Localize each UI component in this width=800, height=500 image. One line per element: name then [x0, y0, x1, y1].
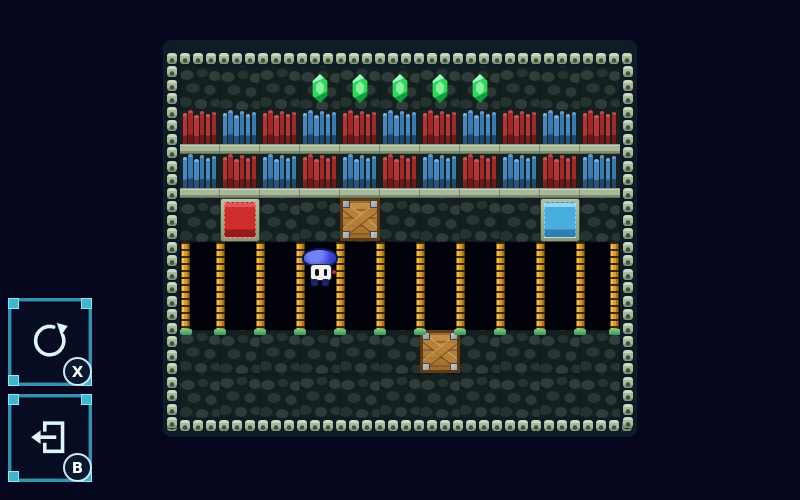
book-spine: [268, 154, 273, 188]
book-spine: [194, 115, 199, 144]
wall-tile: [479, 53, 489, 64]
book-spine: [183, 157, 188, 188]
book-spine: [508, 110, 513, 144]
book-spine: [560, 111, 565, 144]
stone-tile: [540, 374, 580, 418]
ladder-foot: [609, 329, 621, 335]
book-spine: [388, 154, 393, 188]
book-spine: [514, 159, 519, 188]
book-spine: [446, 158, 451, 188]
bookshelf-tile: [380, 154, 420, 198]
book-spine: [308, 154, 313, 188]
book-spine: [354, 115, 359, 144]
wall-tile: [623, 120, 633, 131]
book-spine: [206, 114, 211, 144]
wall-tile: [623, 134, 633, 145]
book-spine: [526, 158, 531, 188]
ladder: [456, 242, 465, 330]
wall-tile: [219, 53, 229, 64]
book-spine: [240, 155, 245, 188]
wall-tile: [557, 53, 567, 64]
wall-tile: [167, 228, 177, 239]
book-spine: [326, 158, 331, 188]
crate-corner-bracket: [341, 232, 349, 240]
wall-tile: [623, 404, 633, 415]
shelf-board: [219, 188, 261, 198]
wall-tile: [623, 377, 633, 388]
ladder-passage-tile: [500, 242, 540, 286]
wall-tile: [531, 53, 541, 64]
stone-tile: [300, 330, 340, 374]
gem-highlight: [436, 81, 444, 95]
stone-tile: [300, 374, 340, 418]
shelf-board: [180, 144, 221, 154]
wall-tile: [623, 282, 633, 293]
wall-tile: [440, 53, 450, 64]
stone-tile: [460, 374, 500, 418]
book-spine: [572, 156, 577, 188]
wall-tile: [622, 53, 632, 64]
wall-tile: [167, 323, 177, 334]
wall-tile: [167, 336, 177, 347]
wall-tile: [167, 93, 177, 104]
book-spine: [303, 113, 308, 144]
wall-tile: [623, 188, 633, 199]
wall-tile: [596, 420, 606, 431]
book-spine: [468, 110, 473, 144]
wall-tile: [167, 147, 177, 158]
shelf-board: [419, 144, 461, 154]
book-spine: [360, 155, 365, 188]
book-spine: [583, 113, 588, 144]
book-spine: [423, 157, 428, 188]
book-spine: [606, 114, 611, 144]
book-spine: [526, 114, 531, 144]
book-spine: [366, 114, 371, 144]
wall-tile: [310, 53, 320, 64]
book-spine: [486, 158, 491, 188]
wall-tile: [271, 53, 281, 64]
wall-tile: [245, 420, 255, 431]
book-spine: [320, 155, 325, 188]
book-spine: [394, 159, 399, 188]
bookshelf-tile: [260, 110, 300, 154]
stone-tile: [380, 198, 420, 242]
game-board: [163, 40, 637, 437]
player-hand: [332, 270, 336, 274]
key-badge-b: B: [63, 453, 92, 482]
wall-tile: [623, 215, 633, 226]
book-spine: [206, 158, 211, 188]
book-spine: [308, 110, 313, 144]
shelf-board: [459, 188, 501, 198]
book-spine: [223, 157, 228, 188]
crate: [420, 330, 460, 373]
book-spine: [314, 115, 319, 144]
blue-block: [541, 199, 579, 241]
shelf-board: [579, 188, 620, 198]
wall-tile: [167, 66, 177, 77]
button-corner: [8, 394, 19, 405]
wall-tile: [375, 420, 385, 431]
block-face: [224, 202, 256, 238]
book-spine: [412, 156, 417, 188]
ladder-passage-tile: [260, 286, 300, 330]
wall-tile: [388, 420, 398, 431]
book-spine: [480, 111, 485, 144]
wall-tile: [167, 174, 177, 185]
book-spine: [428, 154, 433, 188]
stone-tile: [420, 374, 460, 418]
book-spine: [274, 115, 279, 144]
bookshelf-tile: [180, 154, 220, 198]
ladder-foot: [574, 329, 586, 335]
gem-highlight: [396, 81, 404, 95]
shelf-board: [379, 188, 421, 198]
ladder-passage-tile: [260, 242, 300, 286]
bookshelf-tile: [260, 154, 300, 198]
bookshelf-tile: [340, 110, 380, 154]
player-foot: [322, 279, 329, 286]
book-spine: [360, 111, 365, 144]
wall-tile: [323, 420, 333, 431]
book-spine: [520, 111, 525, 144]
wall-tile: [167, 417, 177, 428]
book-spine: [372, 156, 377, 188]
book-spine: [292, 112, 297, 144]
key-label: X: [72, 363, 84, 381]
book-spine: [332, 156, 337, 188]
book-spine: [252, 112, 257, 144]
stone-tile: [260, 198, 300, 242]
stone-tile: [580, 374, 620, 418]
bookshelf-tile: [300, 110, 340, 154]
wall-tile: [310, 420, 320, 431]
wall-tile: [167, 80, 177, 91]
ladder-passage-tile: [540, 286, 580, 330]
wall-tile: [623, 161, 633, 172]
wall-tile: [206, 53, 216, 64]
stone-tile: [540, 330, 580, 374]
wall-tile: [570, 420, 580, 431]
stone-tile: [260, 374, 300, 418]
stone-tile: [340, 374, 380, 418]
ladder-passage-tile: [300, 286, 340, 330]
wall-tile: [427, 53, 437, 64]
shelf-board: [180, 188, 221, 198]
ladder-passage-tile: [500, 286, 540, 330]
book-spine: [543, 157, 548, 188]
wall-tile: [623, 350, 633, 361]
wall-tile: [623, 93, 633, 104]
book-spine: [280, 155, 285, 188]
book-spine: [606, 158, 611, 188]
key-badge-x: X: [63, 357, 92, 386]
book-spine: [252, 156, 257, 188]
book-spine: [188, 154, 193, 188]
book-spine: [463, 157, 468, 188]
wall-tile: [623, 296, 633, 307]
book-spine: [246, 114, 251, 144]
ladder: [576, 242, 585, 330]
shelf-board: [299, 144, 341, 154]
wall-tile: [623, 147, 633, 158]
wall-tile: [623, 390, 633, 401]
wall-tile: [349, 53, 359, 64]
book-spine: [532, 112, 537, 144]
wall-tile: [167, 161, 177, 172]
crate-corner-bracket: [421, 364, 429, 372]
wall-tile: [505, 420, 515, 431]
book-spine: [428, 110, 433, 144]
book-spine: [440, 111, 445, 144]
ladder-passage-tile: [460, 286, 500, 330]
book-spine: [612, 112, 617, 144]
wall-tile: [271, 420, 281, 431]
wall-tile: [505, 53, 515, 64]
book-spine: [200, 155, 205, 188]
ladder: [536, 242, 545, 330]
restart-button[interactable]: X: [8, 298, 92, 386]
ladder-passage-tile: [220, 286, 260, 330]
wall-tile: [623, 417, 633, 428]
ladder-foot: [454, 329, 466, 335]
wall-tile: [232, 420, 242, 431]
player-eye: [315, 269, 319, 276]
shelf-board: [339, 144, 381, 154]
book-spine: [212, 156, 217, 188]
ladder-passage-tile: [220, 242, 260, 286]
exit-button[interactable]: B: [8, 394, 92, 482]
book-spine: [514, 115, 519, 144]
wall-tile: [414, 53, 424, 64]
stone-tile: [540, 66, 580, 110]
gem-highlight: [356, 81, 364, 95]
stone-tile: [260, 330, 300, 374]
shelf-board: [219, 144, 261, 154]
shelf-board: [259, 144, 301, 154]
wall-tile: [623, 309, 633, 320]
book-spine: [194, 159, 199, 188]
book-spine: [486, 114, 491, 144]
wall-tile: [623, 255, 633, 266]
wall-tile: [623, 363, 633, 374]
bookshelf-tile: [580, 110, 620, 154]
wall-tile: [323, 53, 333, 64]
bookshelf-tile: [500, 110, 540, 154]
gem-highlight: [316, 81, 324, 95]
wall-tile: [245, 53, 255, 64]
book-spine: [263, 157, 268, 188]
ladder-passage-tile: [380, 242, 420, 286]
book-spine: [268, 110, 273, 144]
wall-tile: [440, 420, 450, 431]
bookshelf-tile: [580, 154, 620, 198]
wall-tile: [167, 269, 177, 280]
book-spine: [612, 156, 617, 188]
book-spine: [554, 159, 559, 188]
shelf-board: [539, 144, 581, 154]
book-spine: [588, 154, 593, 188]
book-spine: [343, 157, 348, 188]
button-corner: [81, 298, 92, 309]
bookshelf-tile: [300, 154, 340, 198]
player-character: [302, 248, 338, 286]
book-spine: [434, 115, 439, 144]
wall-tile: [219, 420, 229, 431]
wall-tile: [167, 134, 177, 145]
shelf-board: [539, 188, 581, 198]
book-spine: [492, 156, 497, 188]
book-spine: [474, 159, 479, 188]
button-corner: [8, 375, 19, 386]
gem-highlight: [476, 81, 484, 95]
wall-tile: [258, 420, 268, 431]
wall-tile: [518, 53, 528, 64]
wall-tile: [401, 53, 411, 64]
wall-tile: [180, 53, 190, 64]
wall-tile: [375, 53, 385, 64]
red-block: [221, 199, 259, 241]
book-spine: [314, 159, 319, 188]
book-spine: [503, 157, 508, 188]
stone-tile: [300, 198, 340, 242]
bookshelf-tile: [220, 110, 260, 154]
ladder: [376, 242, 385, 330]
stone-tile: [180, 374, 220, 418]
book-spine: [543, 113, 548, 144]
book-spine: [286, 114, 291, 144]
wall-tile: [531, 420, 541, 431]
shelf-board: [339, 188, 381, 198]
book-spine: [588, 110, 593, 144]
book-spine: [326, 114, 331, 144]
wall-tile: [167, 309, 177, 320]
ladder-foot: [334, 329, 346, 335]
stone-tile: [580, 198, 620, 242]
ladder: [610, 242, 619, 330]
wall-tile: [167, 377, 177, 388]
book-spine: [228, 110, 233, 144]
wall-tile: [167, 350, 177, 361]
book-spine: [554, 115, 559, 144]
bookshelf-tile: [420, 154, 460, 198]
book-spine: [492, 112, 497, 144]
wall-tile: [284, 420, 294, 431]
book-spine: [372, 112, 377, 144]
ladder-foot: [414, 329, 426, 335]
book-spine: [246, 158, 251, 188]
wall-tile: [297, 53, 307, 64]
game-screen: X B: [0, 0, 800, 500]
stone-tile: [500, 374, 540, 418]
wall-tile: [167, 188, 177, 199]
stone-tile: [380, 374, 420, 418]
book-spine: [566, 158, 571, 188]
book-spine: [200, 111, 205, 144]
ladder: [496, 242, 505, 330]
ladder: [256, 242, 265, 330]
wall-tile: [544, 420, 554, 431]
bookshelf-tile: [420, 110, 460, 154]
bookshelf-tile: [380, 110, 420, 154]
wall-tile: [570, 53, 580, 64]
book-spine: [583, 157, 588, 188]
wall-tile: [362, 420, 372, 431]
stone-tile: [500, 66, 540, 110]
book-spine: [480, 155, 485, 188]
ladder-foot: [214, 329, 226, 335]
wall-tile: [583, 53, 593, 64]
crate-corner-bracket: [371, 232, 379, 240]
bookshelf-tile: [460, 110, 500, 154]
wall-tile: [193, 53, 203, 64]
shelf-board: [459, 144, 501, 154]
wall-tile: [167, 215, 177, 226]
restart-icon: [27, 317, 73, 363]
book-spine: [423, 113, 428, 144]
wall-tile: [167, 201, 177, 212]
crate-corner-bracket: [451, 364, 459, 372]
book-spine: [354, 159, 359, 188]
shelf-board: [299, 188, 341, 198]
wall-tile: [479, 420, 489, 431]
bookshelf-tile: [180, 110, 220, 154]
shelf-board: [499, 188, 541, 198]
crate: [340, 198, 380, 241]
stone-tile: [420, 198, 460, 242]
book-spine: [452, 156, 457, 188]
wall-tile: [336, 420, 346, 431]
book-spine: [228, 154, 233, 188]
book-spine: [463, 113, 468, 144]
wall-tile: [297, 420, 307, 431]
wall-tile: [623, 323, 633, 334]
wall-tile: [206, 420, 216, 431]
book-spine: [343, 113, 348, 144]
stone-tile: [460, 198, 500, 242]
wall-tile: [623, 107, 633, 118]
ladder-foot: [180, 329, 192, 335]
button-corner: [8, 471, 19, 482]
stone-tile: [180, 330, 220, 374]
wall-tile: [336, 53, 346, 64]
book-spine: [600, 111, 605, 144]
wall-tile: [167, 296, 177, 307]
wall-tile: [349, 420, 359, 431]
wall-tile: [453, 53, 463, 64]
wall-tile: [414, 420, 424, 431]
book-spine: [280, 111, 285, 144]
ladder-passage-tile: [460, 242, 500, 286]
ladder-foot: [534, 329, 546, 335]
wall-tile: [623, 242, 633, 253]
wall-tile: [453, 420, 463, 431]
ladder-foot: [254, 329, 266, 335]
book-spine: [503, 113, 508, 144]
stone-tile: [220, 66, 260, 110]
ladder-passage-tile: [420, 242, 460, 286]
wall-tile: [167, 255, 177, 266]
stone-tile: [220, 330, 260, 374]
stone-tile: [340, 330, 380, 374]
block-face: [544, 202, 576, 238]
stone-tile: [180, 198, 220, 242]
book-spine: [286, 158, 291, 188]
book-spine: [383, 113, 388, 144]
bookshelf-tile: [340, 154, 380, 198]
book-spine: [348, 110, 353, 144]
